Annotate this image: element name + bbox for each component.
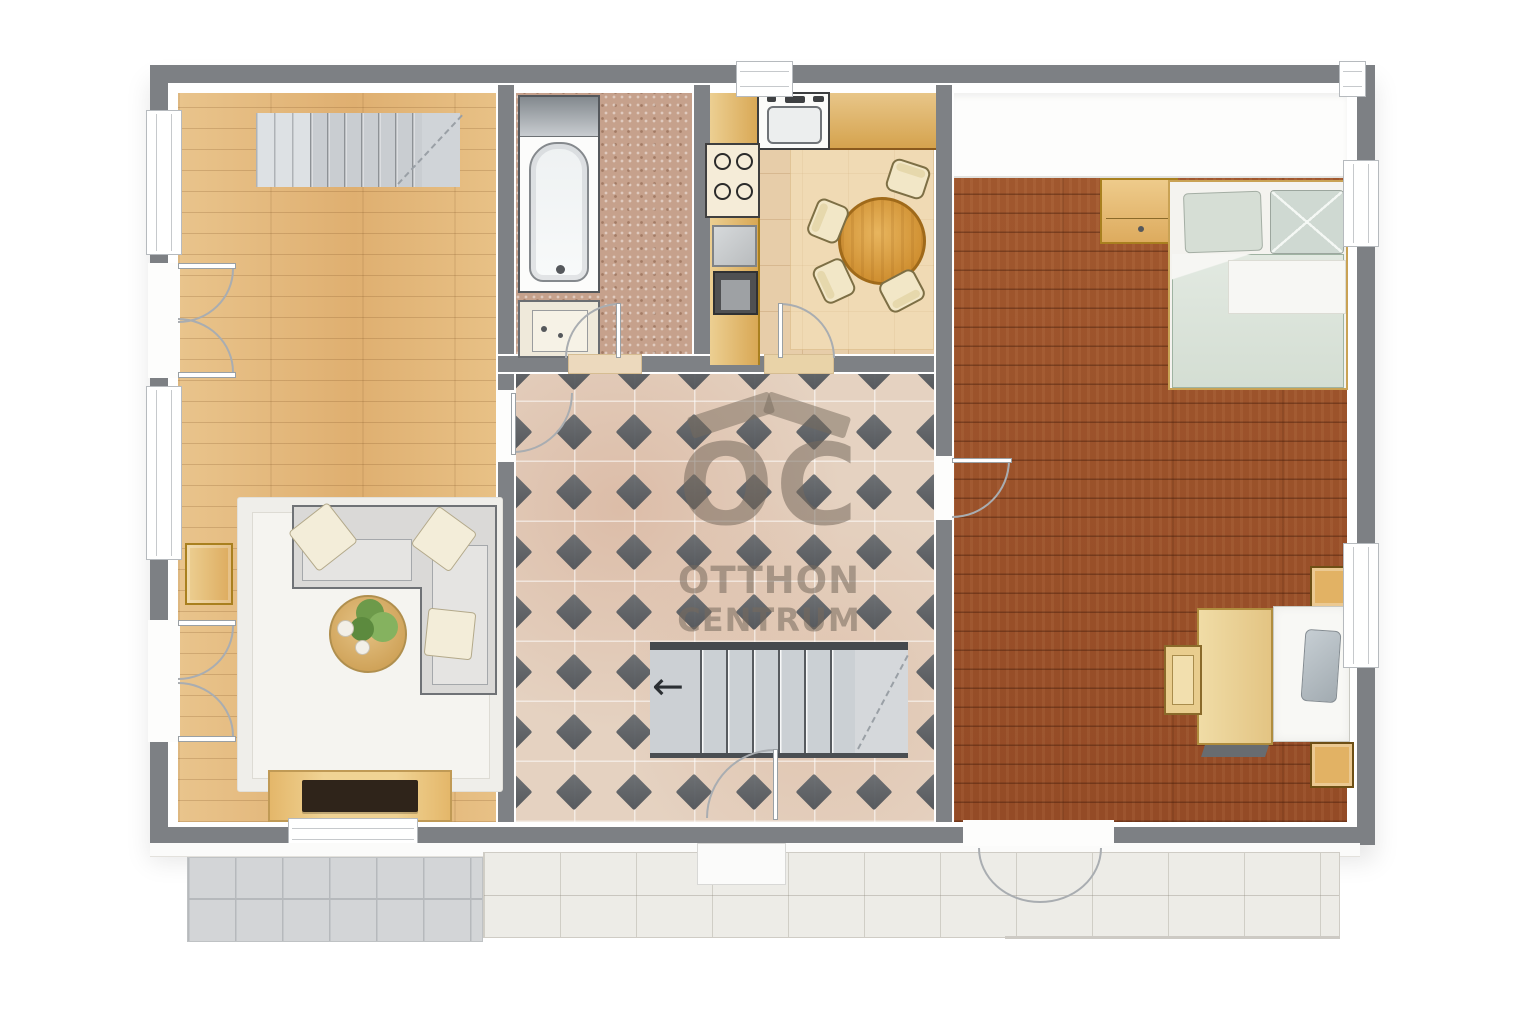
bedroom-door-leaf bbox=[952, 458, 1012, 463]
floor-tile-diamond bbox=[916, 594, 936, 631]
staircase-down-bottom-stringer bbox=[650, 753, 908, 758]
entrance-porch bbox=[697, 843, 786, 885]
floor-tile-diamond bbox=[856, 372, 893, 390]
burner-2 bbox=[736, 153, 753, 170]
burner-4 bbox=[736, 183, 753, 200]
window-top-kitchen bbox=[736, 61, 793, 97]
floor-tile-diamond bbox=[514, 774, 532, 811]
washing-machine-knob-1 bbox=[541, 326, 547, 332]
desk-chair bbox=[1164, 645, 1202, 715]
washing-machine-knob-2 bbox=[558, 333, 563, 338]
wall-living-bathroom bbox=[498, 85, 514, 390]
kitchen-sink-basin bbox=[767, 106, 822, 144]
floor-tile-diamond bbox=[514, 534, 532, 571]
floor-tile-diamond bbox=[556, 774, 593, 811]
bathtub bbox=[518, 95, 600, 293]
floor-tile-diamond bbox=[556, 372, 593, 390]
sofa-cushion-3 bbox=[424, 608, 477, 661]
bedroom-door-opening bbox=[934, 456, 954, 520]
bathtub-drain bbox=[556, 265, 565, 274]
floor-tile-diamond bbox=[616, 714, 653, 751]
terrace-tiles bbox=[483, 852, 1340, 938]
staircase-direction-arrow: ← bbox=[652, 664, 684, 708]
staircase-down-treads bbox=[700, 650, 855, 753]
bathtub-basin bbox=[529, 142, 589, 282]
oven-window bbox=[721, 280, 750, 310]
wall-hallway-bedroom-lower bbox=[936, 520, 952, 822]
floor-tile-diamond bbox=[916, 414, 936, 451]
floor-tile-diamond bbox=[556, 534, 593, 571]
desk bbox=[1197, 608, 1273, 745]
floor-tile-diamond bbox=[514, 474, 532, 511]
floor-tile-diamond bbox=[856, 774, 893, 811]
floor-tile-diamond bbox=[556, 594, 593, 631]
bathroom-door-leaf bbox=[616, 303, 621, 358]
cooktop bbox=[705, 143, 760, 218]
watermark-logo: OC bbox=[639, 430, 899, 542]
kitchen-tap-right bbox=[813, 96, 824, 102]
wall-hallway-top-seg1 bbox=[498, 356, 568, 372]
desk-chair-seat bbox=[1172, 655, 1194, 705]
window-left-1 bbox=[146, 110, 182, 255]
terrace-doors-opening bbox=[963, 820, 1114, 846]
folded-blanket bbox=[1228, 260, 1346, 314]
bedroom-wardrobe-area bbox=[952, 93, 1347, 178]
floor-tile-diamond bbox=[736, 372, 773, 390]
floor-tile-diamond bbox=[916, 654, 936, 691]
living-door-a-opening bbox=[148, 263, 180, 378]
bathtub-shelf bbox=[520, 97, 598, 137]
window-right-1 bbox=[1343, 160, 1379, 247]
single-bed-pillow bbox=[1301, 629, 1342, 703]
living-door-b-opening bbox=[148, 620, 180, 742]
burner-3 bbox=[714, 183, 731, 200]
floor-tile-diamond bbox=[514, 594, 532, 631]
staircase-down bbox=[650, 642, 908, 758]
floor-tile-diamond bbox=[916, 474, 936, 511]
cabinet-bottom bbox=[1310, 742, 1354, 788]
floor-tile-diamond bbox=[616, 774, 653, 811]
living-door-b-bottom-leaf bbox=[178, 736, 236, 742]
side-table bbox=[185, 543, 233, 605]
table-bowl-1 bbox=[337, 620, 354, 637]
living-hall-door-leaf bbox=[511, 393, 516, 455]
tv-screen bbox=[302, 780, 418, 812]
floor-tile-diamond bbox=[556, 654, 593, 691]
floor-tile-diamond bbox=[514, 714, 532, 751]
living-door-a-bottom-leaf bbox=[178, 372, 236, 378]
pillow-plain bbox=[1183, 191, 1263, 254]
staircase-up-first-treads bbox=[256, 113, 310, 187]
floor-tile-diamond bbox=[616, 372, 653, 390]
window-top-bedroom bbox=[1339, 61, 1366, 97]
window-right-2 bbox=[1343, 543, 1379, 668]
nightstand-drawer-line bbox=[1106, 218, 1172, 219]
desk-shadow-mat bbox=[1201, 745, 1269, 757]
nightstand-knob bbox=[1138, 226, 1144, 232]
floor-tile-diamond bbox=[916, 372, 936, 390]
floor-tile-diamond bbox=[616, 654, 653, 691]
floor-tile-diamond bbox=[556, 714, 593, 751]
floor-tile-diamond bbox=[514, 654, 532, 691]
kitchen-door-leaf bbox=[778, 303, 783, 358]
kitchen-faucet bbox=[785, 96, 805, 103]
kitchen-sink-unit bbox=[757, 92, 830, 150]
wall-hallway-top-seg3 bbox=[834, 356, 952, 372]
pillow-envelope bbox=[1270, 190, 1344, 254]
floor-tile-diamond bbox=[916, 534, 936, 571]
watermark-line1: OTTHON bbox=[639, 562, 899, 599]
dishwasher bbox=[712, 225, 757, 267]
burner-1 bbox=[714, 153, 731, 170]
entrance-door-leaf bbox=[773, 749, 778, 820]
nightstand bbox=[1100, 178, 1178, 244]
floor-tile-diamond bbox=[916, 774, 936, 811]
terrace-edge-line bbox=[1005, 936, 1340, 939]
watermark-line2: CENTRUM bbox=[639, 604, 899, 636]
floor-tile-diamond bbox=[796, 774, 833, 811]
wall-hallway-bedroom-upper bbox=[936, 85, 952, 456]
wall-bathroom-kitchen bbox=[694, 85, 710, 372]
window-left-2 bbox=[146, 386, 182, 560]
floor-tile-diamond bbox=[796, 372, 833, 390]
oven-microwave bbox=[713, 271, 758, 315]
terrace-gray-path bbox=[187, 857, 483, 942]
double-bed bbox=[1168, 180, 1348, 390]
table-bowl-2 bbox=[355, 640, 370, 655]
staircase-down-top-stringer bbox=[650, 642, 908, 650]
floor-tile-diamond bbox=[916, 714, 936, 751]
floor-tile-diamond bbox=[556, 474, 593, 511]
floor-tile-diamond bbox=[676, 372, 713, 390]
floor-plan: ← bbox=[0, 0, 1536, 1024]
floor-tile-diamond bbox=[514, 372, 532, 390]
